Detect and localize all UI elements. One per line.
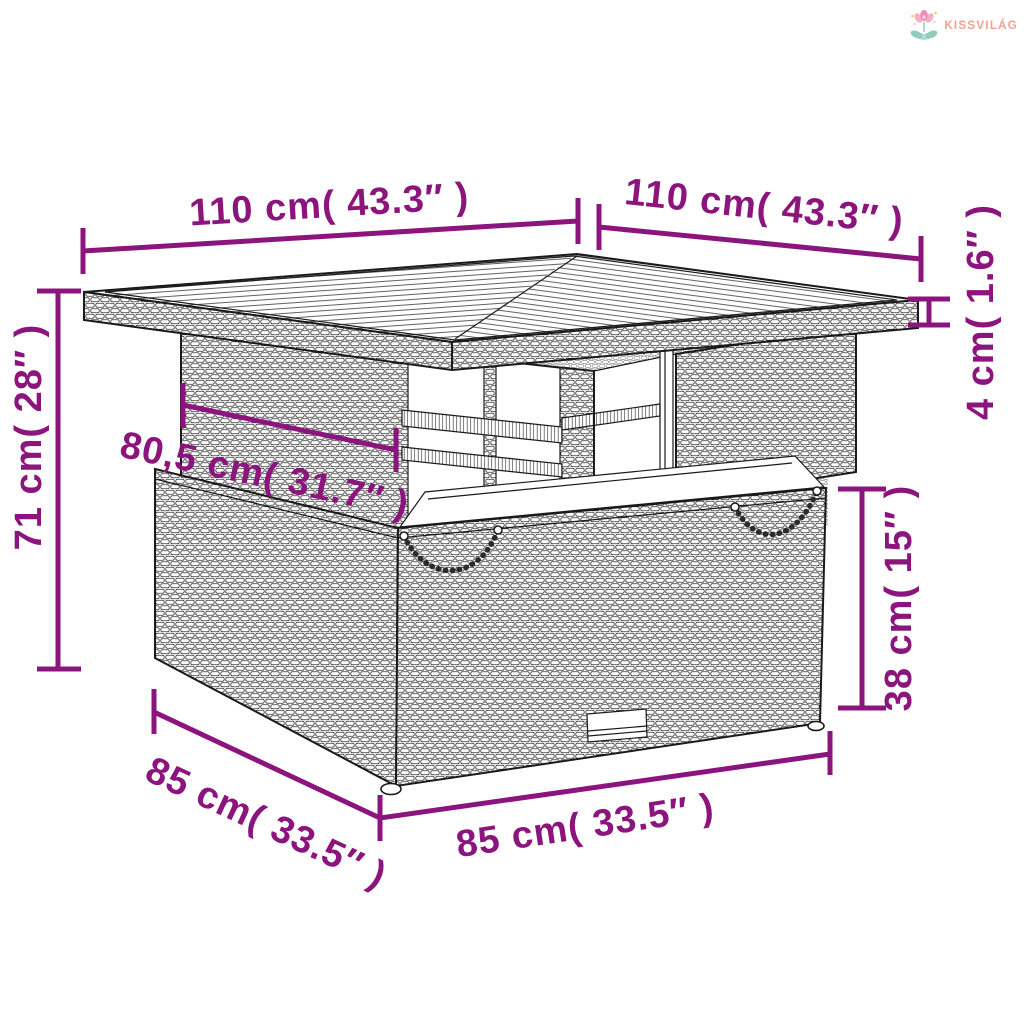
table-drawing [84,254,918,795]
dimension-label-tabletop-thickness: 4 cm( 1.6″ ) [960,204,1002,420]
base-vent [587,709,647,742]
dimension-label-top-width-left: 110 cm( 43.3″ ) [188,176,470,235]
foot-right [808,722,824,731]
base-box [155,456,826,795]
diagram-canvas: 110 cm( 43.3″ ) 110 cm( 43.3″ ) 4 cm( 1.… [0,0,1024,1024]
dimension-base-height: 38 cm( 15″ ) [838,485,920,712]
brand-logo: KISSVILÁG [908,7,1018,45]
dimension-label-base-width: 85 cm( 33.5″ ) [453,786,717,866]
brand-name: KISSVILÁG [944,20,1018,32]
dimension-label-base-height: 38 cm( 15″ ) [878,485,920,712]
flower-logo-icon [908,7,940,45]
dimension-total-height: 71 cm( 28″ ) [8,291,81,669]
foot-front [381,784,401,795]
product-dimension-drawing: 110 cm( 43.3″ ) 110 cm( 43.3″ ) 4 cm( 1.… [0,0,1024,1024]
dimension-label-total-height: 71 cm( 28″ ) [8,324,50,551]
dimension-label-base-depth: 85 cm( 33.5″ ) [139,749,393,897]
